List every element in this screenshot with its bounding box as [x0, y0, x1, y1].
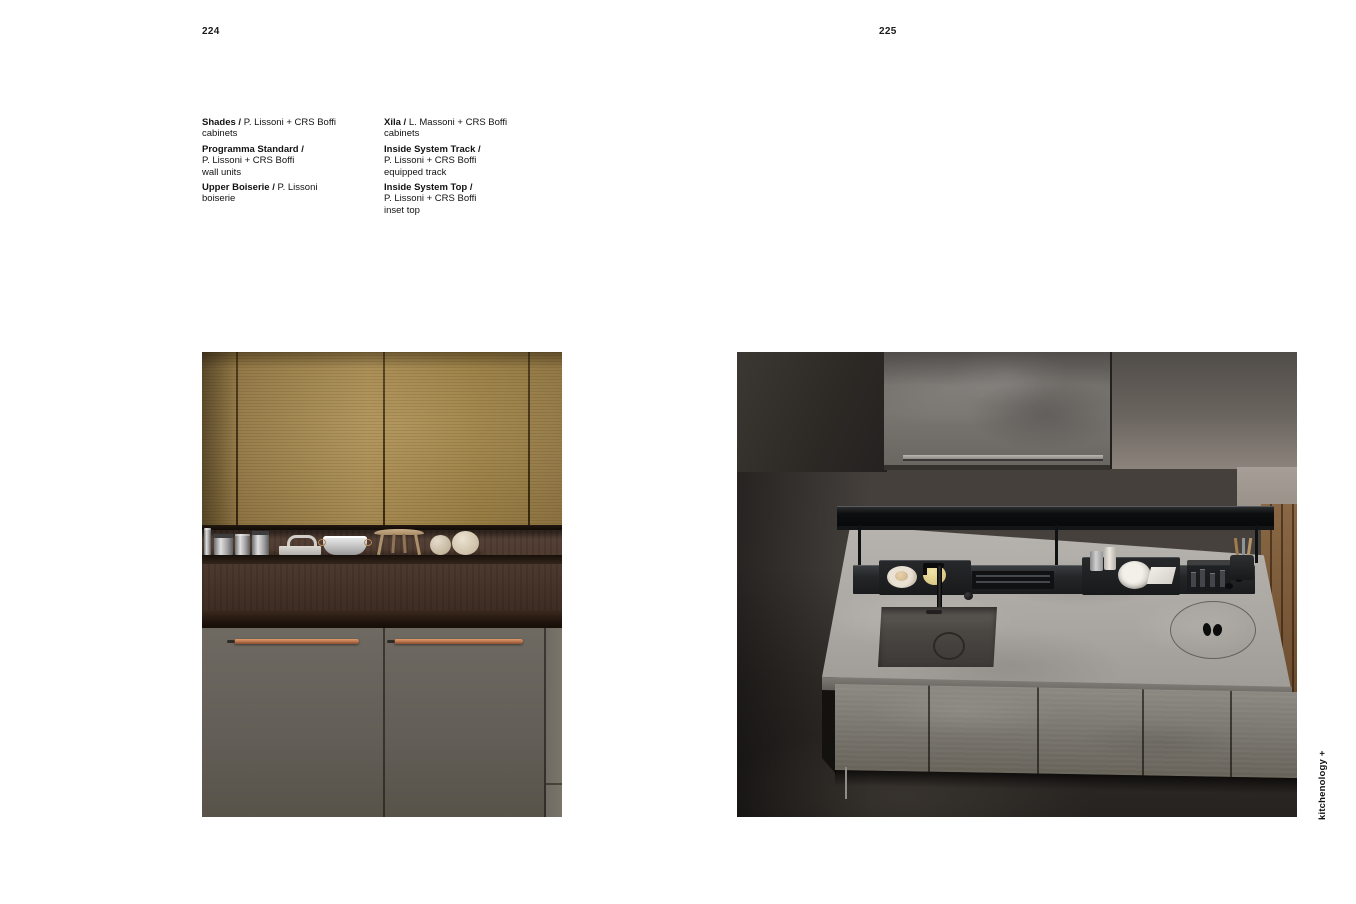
track-channel	[972, 571, 1054, 589]
canister	[204, 528, 211, 555]
caption-item: Inside System Track / P. Lissoni + CRS B…	[384, 144, 560, 178]
white-bowl	[1118, 561, 1151, 589]
counter-edge	[202, 610, 562, 628]
caption-line: equipped track	[384, 167, 560, 178]
caption-column-right: Xila / L. Massoni + CRS Boffi cabinets I…	[384, 117, 560, 220]
caption-item: Xila / L. Massoni + CRS Boffi cabinets	[384, 117, 560, 140]
canister	[214, 534, 233, 555]
room-wall-left	[737, 352, 887, 472]
front-seam	[1142, 689, 1144, 775]
product-name: Programma Standard /	[202, 144, 304, 155]
caption-line: P. Lissoni + CRS Boffi	[202, 155, 378, 166]
side-panel	[546, 628, 562, 817]
canister	[252, 531, 269, 555]
cup	[1104, 547, 1116, 570]
front-seam	[1230, 691, 1232, 777]
shelf-leg	[1055, 525, 1058, 566]
spice-bottle	[1191, 572, 1196, 587]
caption-column-left: Shades / P. Lissoni + CRS Boffi cabinets…	[202, 117, 378, 209]
canister-group	[204, 528, 270, 555]
cabinet-seam	[383, 352, 385, 528]
bread-plate	[887, 566, 917, 588]
cup	[1090, 551, 1103, 571]
stone-backsplash	[884, 352, 1110, 465]
photo-right-kitchen-xila-island	[737, 352, 1297, 817]
cabinet-seam	[236, 352, 238, 528]
utensil-holder	[1230, 555, 1254, 580]
wooden-stool	[373, 529, 425, 555]
page-number-left: 224	[202, 26, 220, 37]
caption-item: Inside System Top / P. Lissoni + CRS Bof…	[384, 182, 560, 216]
caption-line: cabinets	[202, 128, 378, 139]
side-label-kitchenology: kitchenology +	[1317, 740, 1328, 820]
cooking-pot	[323, 536, 367, 555]
canister	[235, 534, 250, 555]
product-name: Inside System Track /	[384, 144, 481, 155]
caption-line: P. Lissoni + CRS Boffi	[384, 155, 560, 166]
front-seam	[1037, 688, 1039, 774]
copper-door-handle	[394, 639, 523, 644]
yarn-ball	[430, 535, 451, 555]
front-seam	[928, 686, 930, 772]
caption-item: Shades / P. Lissoni + CRS Boffi cabinets	[202, 117, 378, 140]
wall-cabinet-right	[1110, 352, 1297, 469]
product-name: Xila /	[384, 117, 406, 128]
product-credit: P. Lissoni + CRS Boffi	[244, 117, 336, 128]
gold-wall-cabinets	[202, 352, 562, 528]
product-name: Shades /	[202, 117, 241, 128]
napkin	[1147, 567, 1176, 584]
caption-line: inset top	[384, 205, 560, 216]
door-seam	[383, 628, 385, 817]
stool-leg	[402, 534, 406, 553]
caption-line: P. Lissoni + CRS Boffi	[384, 193, 560, 204]
caption-line: wall units	[202, 167, 378, 178]
island-foot	[845, 767, 847, 799]
product-credit: L. Massoni + CRS Boffi	[409, 117, 507, 128]
sink-overflow	[926, 610, 942, 614]
product-name: Upper Boiserie /	[202, 182, 275, 193]
caption-line: boiserie	[202, 193, 378, 204]
cabinet-edge-shadow	[202, 352, 236, 528]
black-glass-shelf	[837, 506, 1274, 526]
copper-door-handle	[234, 639, 359, 644]
product-credit: P. Lissoni	[278, 182, 318, 193]
yarn-ball	[452, 531, 479, 555]
track-hole	[1225, 583, 1233, 589]
page-number-right: 225	[879, 26, 897, 37]
photo-left-kitchen-shades	[202, 352, 562, 817]
stool-leg	[391, 534, 395, 553]
spice-bottle	[1200, 569, 1205, 587]
stool-leg	[377, 534, 384, 555]
side-panel-seam	[546, 783, 562, 785]
product-name: Inside System Top /	[384, 182, 473, 193]
caption-item: Upper Boiserie / P. Lissoni boiserie	[202, 182, 378, 205]
faucet	[937, 566, 942, 610]
spice-bottle	[1210, 573, 1215, 587]
grey-base-doors	[202, 628, 562, 817]
backsplash-rail	[903, 455, 1103, 459]
shelf-board	[202, 555, 562, 564]
sink-drain	[933, 632, 965, 660]
cabinet-seam	[528, 352, 530, 528]
faucet-knob	[964, 592, 973, 600]
caption-line: cabinets	[384, 128, 560, 139]
marble-press	[279, 535, 321, 555]
island-door-fronts	[835, 684, 1297, 778]
caption-item: Programma Standard / P. Lissoni + CRS Bo…	[202, 144, 378, 178]
stool-leg	[414, 534, 421, 555]
shelf-leg	[1255, 525, 1258, 563]
